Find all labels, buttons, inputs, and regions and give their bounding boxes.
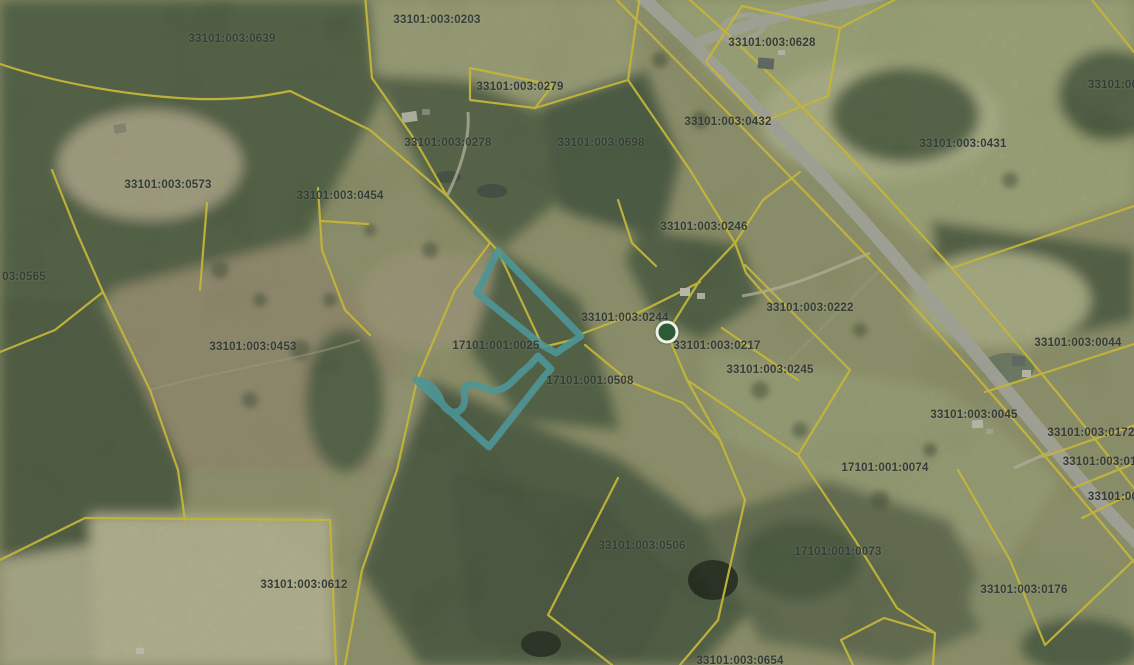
map-point-marker[interactable]	[656, 321, 679, 344]
aerial-imagery	[0, 0, 1134, 665]
map-canvas[interactable]: 33101:003:063933101:003:020333101:003:06…	[0, 0, 1134, 665]
